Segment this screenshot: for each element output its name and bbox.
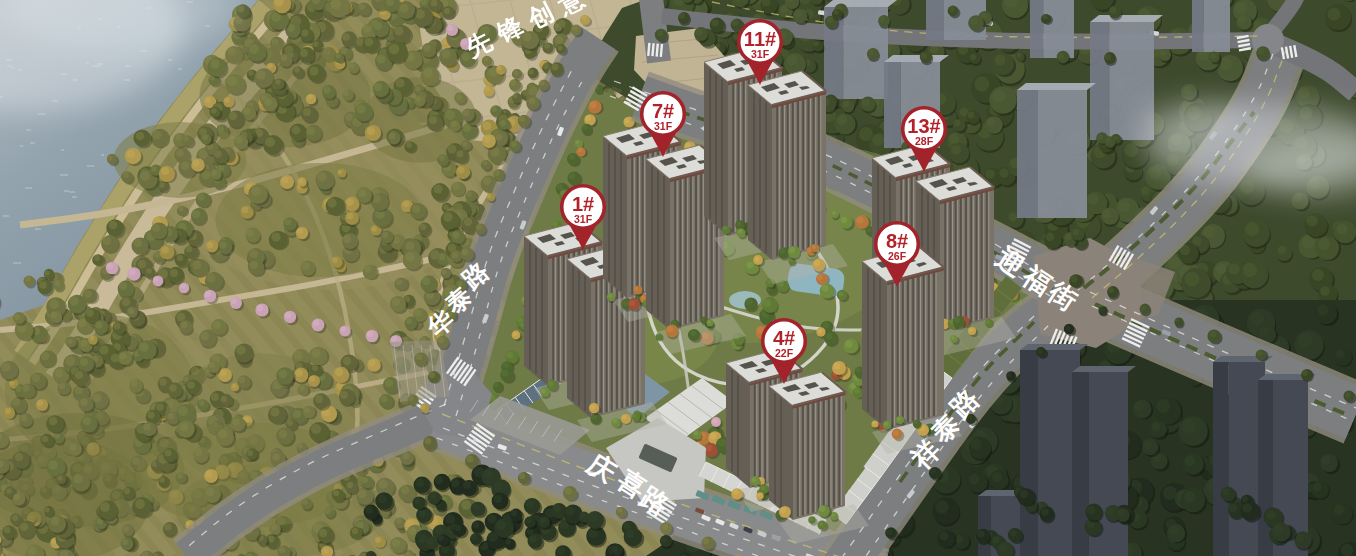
svg-text:22F: 22F [775, 347, 794, 359]
svg-text:31F: 31F [751, 48, 770, 60]
svg-text:4#: 4# [773, 327, 795, 349]
svg-text:31F: 31F [574, 213, 593, 225]
svg-text:11#: 11# [744, 28, 776, 50]
svg-text:13#: 13# [907, 115, 940, 137]
svg-text:8#: 8# [886, 230, 908, 252]
svg-text:28F: 28F [915, 135, 934, 147]
svg-text:26F: 26F [888, 250, 907, 262]
svg-text:7#: 7# [652, 100, 674, 122]
svg-text:31F: 31F [654, 120, 673, 132]
svg-text:1#: 1# [572, 193, 594, 215]
